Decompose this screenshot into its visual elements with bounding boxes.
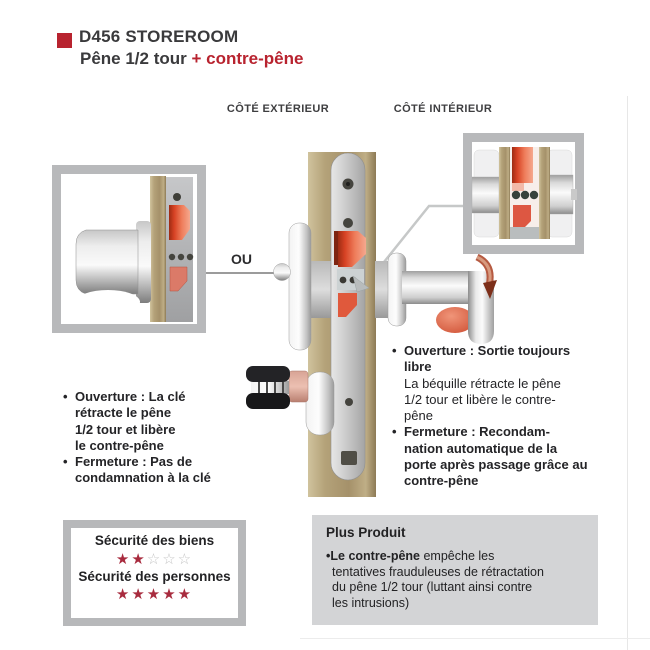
screw-icon bbox=[512, 191, 520, 199]
plus-bullet-continued: tentatives frauduleuses de rétractationd… bbox=[326, 565, 584, 612]
security-persons-stars: ★★★★★ bbox=[71, 585, 238, 604]
screw-icon bbox=[169, 254, 175, 260]
inset-door-edge bbox=[150, 176, 193, 322]
plus-bullet-bold: Le contre-pêne bbox=[330, 549, 420, 563]
page-edge-line bbox=[300, 638, 650, 639]
faceplate-slot bbox=[341, 451, 357, 465]
note-item: Fermeture : Recondam-nation automatique … bbox=[392, 424, 644, 489]
screw-icon bbox=[340, 277, 347, 284]
exterior-notes: Ouverture : La clérétracte le pêne1/2 to… bbox=[63, 389, 263, 487]
spindle bbox=[472, 177, 499, 213]
screw-icon bbox=[187, 254, 193, 260]
or-label: OU bbox=[231, 251, 252, 267]
security-goods-stars: ★★☆☆☆ bbox=[71, 550, 238, 569]
subtitle-red: + contre-pêne bbox=[191, 49, 303, 68]
handle-lever bbox=[402, 271, 470, 304]
exterior-detail-inset bbox=[52, 165, 206, 333]
latch-bolt bbox=[512, 147, 533, 183]
interior-handle bbox=[388, 253, 497, 344]
page-edge-line bbox=[627, 96, 628, 650]
security-persons-label: Sécurité des personnes bbox=[71, 569, 238, 586]
screw-icon bbox=[521, 191, 529, 199]
plus-product-title: Plus Produit bbox=[326, 525, 584, 540]
exterior-knob bbox=[76, 221, 151, 314]
screw-icon bbox=[178, 254, 184, 260]
wood-strip bbox=[539, 147, 550, 239]
brand-square-icon bbox=[57, 33, 72, 48]
product-subtitle: Pêne 1/2 tour + contre-pêne bbox=[80, 48, 303, 70]
note-item: Ouverture : Sortie toujourslibre La béqu… bbox=[392, 343, 644, 424]
cylinder-rose bbox=[306, 372, 334, 435]
security-goods-label: Sécurité des biens bbox=[71, 533, 238, 550]
key-collar bbox=[289, 371, 308, 402]
plus-bullet-text: empêche les bbox=[420, 549, 494, 563]
wood-strip bbox=[150, 176, 166, 322]
note-lines-bold: Ouverture : Sortie toujourslibre bbox=[404, 343, 570, 376]
interior-detail-inset bbox=[463, 133, 584, 254]
subtitle-dark: Pêne 1/2 tour bbox=[80, 49, 191, 68]
exterior-hub bbox=[309, 261, 331, 318]
interior-side-label: CÔTÉ INTÉRIEUR bbox=[389, 103, 497, 115]
wood-strip bbox=[499, 147, 510, 239]
product-sheet: D456 STOREROOM Pêne 1/2 tour + contre-pê… bbox=[0, 0, 650, 650]
interior-notes: Ouverture : Sortie toujourslibre La béqu… bbox=[392, 343, 644, 490]
screw-icon bbox=[173, 193, 181, 201]
plus-product-bullet: Le contre-pêne empêche les bbox=[326, 549, 584, 565]
product-title: D456 STOREROOM bbox=[79, 26, 238, 48]
plus-product-box: Plus Produit Le contre-pêne empêche les … bbox=[312, 515, 598, 625]
note-item: Ouverture : La clérétracte le pêne1/2 to… bbox=[63, 389, 263, 454]
door-cross-section bbox=[308, 152, 392, 497]
note-lines: Fermeture : Pas decondamnation à la clé bbox=[75, 454, 211, 487]
faceplate bbox=[331, 153, 365, 480]
spindle bbox=[547, 175, 573, 214]
exterior-side-label: CÔTÉ EXTÉRIEUR bbox=[221, 103, 335, 115]
exterior-escutcheon bbox=[274, 223, 312, 350]
note-lines-bold: Fermeture : Recondam-nation automatique … bbox=[404, 424, 588, 489]
note-item: Fermeture : Pas decondamnation à la clé bbox=[63, 454, 263, 487]
key-head bbox=[246, 366, 290, 382]
screw-icon bbox=[345, 398, 353, 406]
note-lines-regular: La béquille rétracte le pêne1/2 tour et … bbox=[404, 376, 570, 425]
security-rating-box: Sécurité des biens ★★☆☆☆ Sécurité des pe… bbox=[63, 520, 246, 626]
thumb-knob bbox=[274, 264, 291, 281]
screw-icon bbox=[530, 191, 538, 199]
note-lines: Ouverture : La clérétracte le pêne1/2 to… bbox=[75, 389, 186, 454]
screw-icon bbox=[343, 218, 353, 228]
